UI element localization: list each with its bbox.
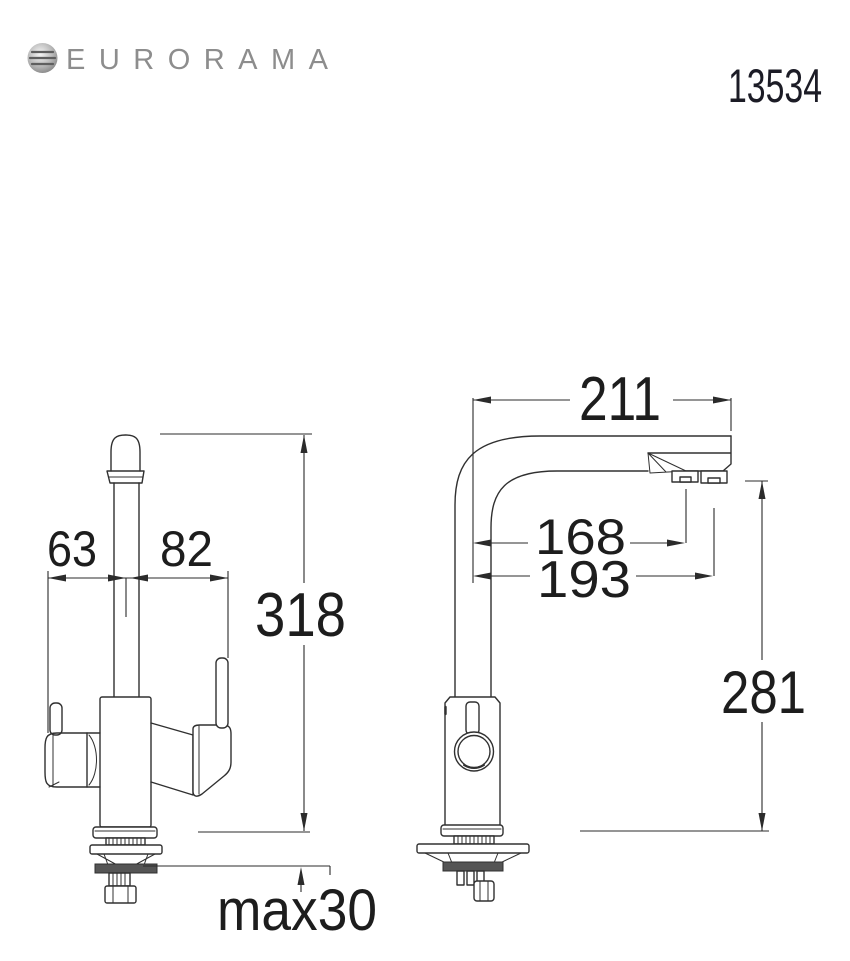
- dim-outlet-2: 193: [537, 551, 631, 609]
- base-flange: [93, 827, 157, 838]
- mounting-bracket: [90, 845, 162, 854]
- dim-left-valve-offset: 63: [47, 521, 97, 577]
- model-number: 13534: [728, 59, 822, 112]
- outlet-2-nozzle: [708, 478, 720, 483]
- dim-deck-thickness: max30: [217, 878, 377, 943]
- dim-spout-reach: 211: [579, 365, 661, 434]
- outlet-1-nozzle: [680, 477, 691, 482]
- locking-washer: [95, 864, 157, 873]
- front-view: [45, 435, 231, 903]
- handle-transition: [151, 723, 193, 795]
- threaded-stud: [109, 873, 130, 886]
- handle-lever-side: [466, 702, 479, 734]
- handle-knob-outer: [455, 732, 494, 771]
- locking-washer-side: [443, 862, 503, 871]
- stud-1: [457, 871, 464, 885]
- dim-handle-offset: 82: [160, 521, 213, 577]
- stud-2: [467, 871, 474, 885]
- left-valve-lever: [50, 703, 62, 735]
- hose-connector: [105, 886, 136, 903]
- mounting-bracket-side: [417, 844, 529, 853]
- side-view-dimensions: 211 168 193 281: [473, 365, 806, 831]
- dim-total-height: 318: [255, 581, 346, 650]
- logo: EURORAMA: [28, 43, 331, 76]
- base-flange-side: [441, 825, 503, 836]
- mounting-nut: [474, 881, 494, 901]
- brand-wordmark: EURORAMA: [66, 44, 330, 76]
- technical-drawing: EURORAMA 13534: [0, 0, 850, 961]
- spout-dome-cap: [111, 435, 140, 471]
- drawing-sheet: EURORAMA 13534: [0, 0, 850, 961]
- faucet-body: [100, 697, 151, 827]
- dim-height-above-deck: 281: [721, 659, 806, 726]
- right-handle-lever: [216, 658, 228, 728]
